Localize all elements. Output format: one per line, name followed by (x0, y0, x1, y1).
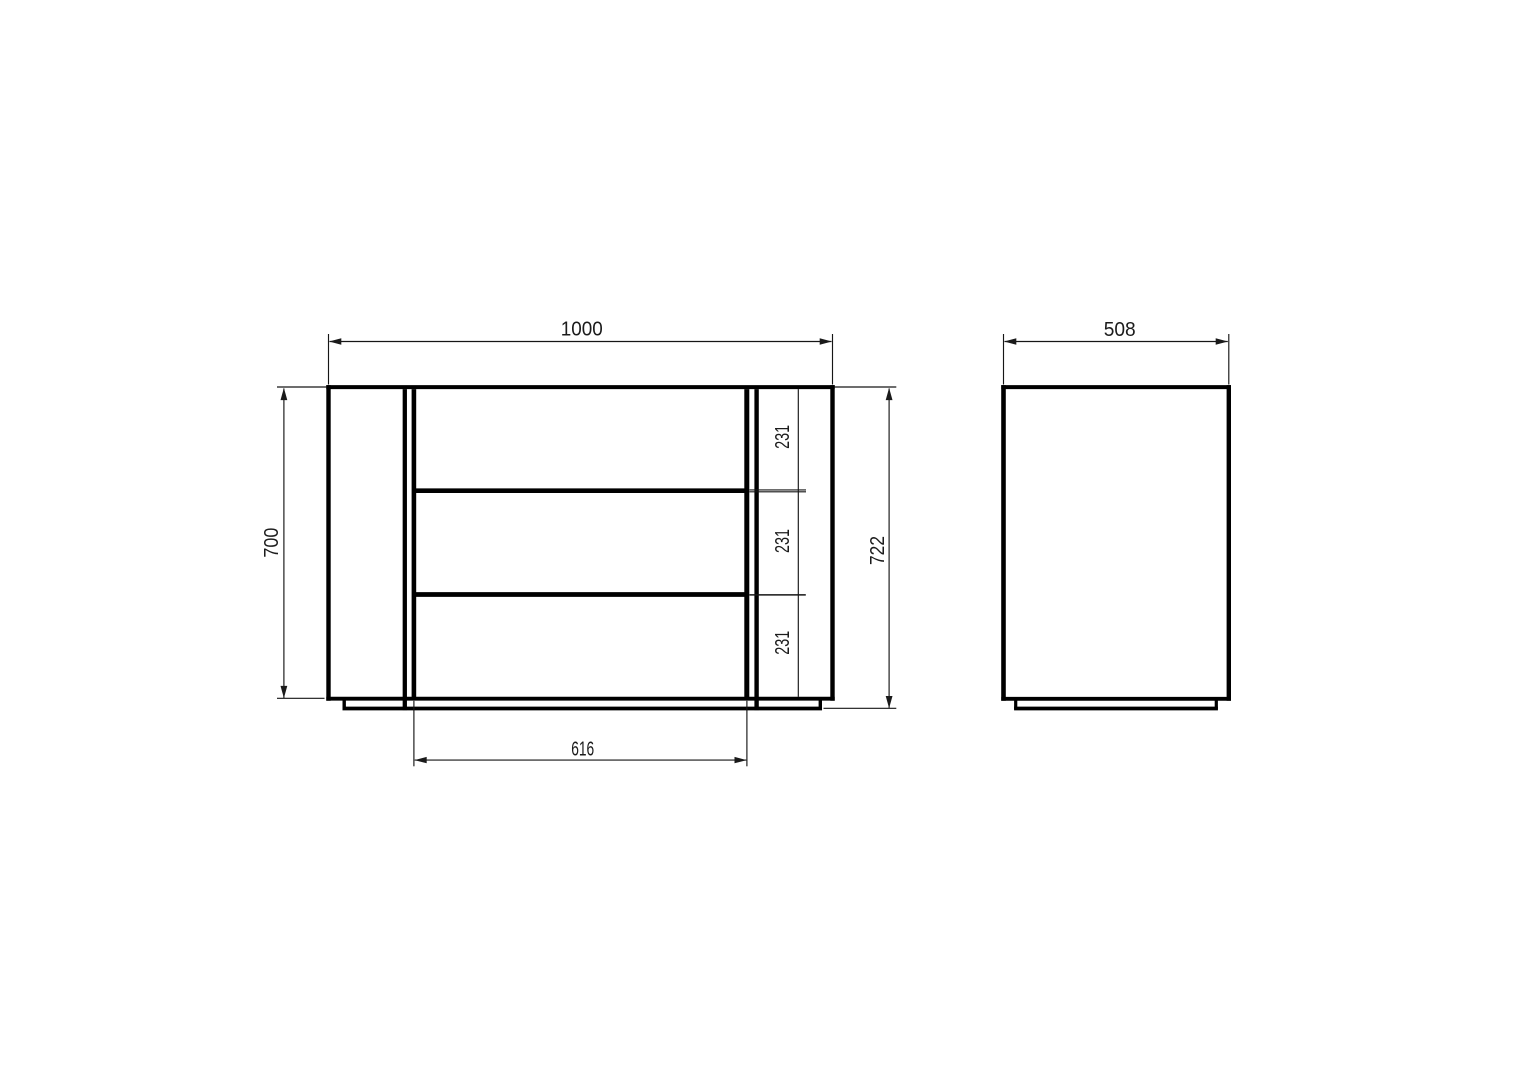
svg-text:231: 231 (772, 425, 794, 449)
svg-text:1000: 1000 (561, 318, 603, 340)
svg-text:700: 700 (261, 528, 283, 558)
svg-text:508: 508 (1104, 319, 1136, 341)
svg-text:231: 231 (772, 529, 794, 553)
svg-text:722: 722 (867, 536, 889, 565)
svg-text:616: 616 (571, 738, 594, 760)
svg-text:231: 231 (772, 631, 794, 655)
